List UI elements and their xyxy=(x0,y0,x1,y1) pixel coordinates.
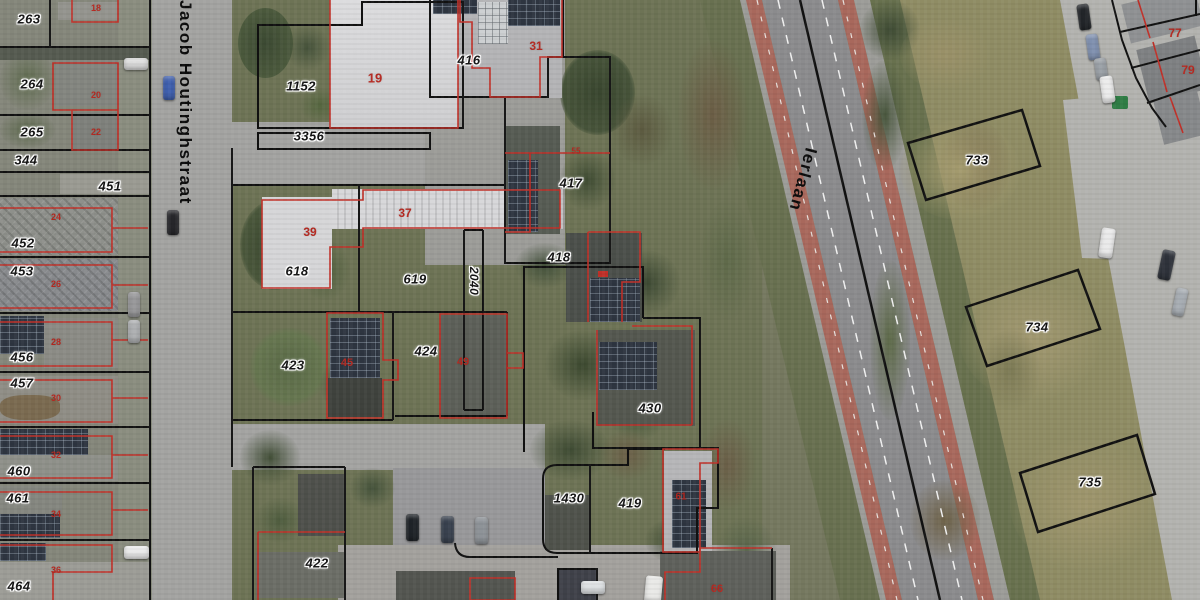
parcel-label-264: 264 xyxy=(21,77,44,92)
parcel-label-456: 456 xyxy=(11,350,34,365)
parcel-label-418: 418 xyxy=(548,250,571,265)
parcel-label-422: 422 xyxy=(306,556,329,571)
parcel-label-263: 263 xyxy=(18,12,41,27)
house-number-24: 24 xyxy=(51,212,61,222)
map-viewport[interactable]: 2632642653444514524534564574604614641152… xyxy=(0,0,1200,600)
parcel-label-618: 618 xyxy=(286,264,309,279)
street-label-jacob-houtinghstraat: Jacob Houtinghstraat xyxy=(175,0,195,205)
parcel-label-733: 733 xyxy=(966,153,989,168)
house-number-39: 39 xyxy=(303,225,316,239)
house-number-45: 45 xyxy=(341,357,353,369)
parcel-label-464: 464 xyxy=(8,579,31,594)
parcel-label-424: 424 xyxy=(415,344,438,359)
parcel-label-344: 344 xyxy=(15,153,38,168)
parcel-label-416: 416 xyxy=(458,53,481,68)
parcel-label-453: 453 xyxy=(11,264,34,279)
parcel-label-423: 423 xyxy=(282,358,305,373)
house-number-32: 32 xyxy=(51,450,61,460)
house-number-31: 31 xyxy=(529,39,542,53)
house-number-49: 49 xyxy=(457,356,469,368)
house-number-30: 30 xyxy=(51,393,61,403)
parcel-label-735: 735 xyxy=(1079,475,1102,490)
house-number-28: 28 xyxy=(51,337,61,347)
parcel-label-417: 417 xyxy=(560,176,583,191)
parcel-label-460: 460 xyxy=(8,464,31,479)
house-number-34: 34 xyxy=(51,509,61,519)
house-number-79: 79 xyxy=(1181,63,1194,77)
house-number-26: 26 xyxy=(51,279,61,289)
parcel-label-1152: 1152 xyxy=(286,79,316,94)
house-number-77: 77 xyxy=(1168,26,1181,40)
parcel-label-734: 734 xyxy=(1026,320,1049,335)
house-number-20: 20 xyxy=(91,90,101,100)
house-number-66: 66 xyxy=(711,583,723,595)
parcel-label-461: 461 xyxy=(7,491,30,506)
parcel-label-457: 457 xyxy=(11,376,34,391)
house-number-37: 37 xyxy=(398,206,411,220)
parcel-label-419: 419 xyxy=(619,496,642,511)
parcel-label-1430: 1430 xyxy=(554,491,585,506)
house-number-36: 36 xyxy=(51,565,61,575)
parcel-label-2040: 2040 xyxy=(467,267,481,295)
parcel-label-619: 619 xyxy=(404,272,427,287)
house-number-55: 55 xyxy=(572,147,581,156)
house-number-61: 61 xyxy=(675,492,686,503)
house-number-19: 19 xyxy=(368,71,382,86)
parcel-label-430: 430 xyxy=(639,401,662,416)
parcel-label-265: 265 xyxy=(21,125,44,140)
house-number-22: 22 xyxy=(91,127,101,137)
parcel-label-3356: 3356 xyxy=(294,129,325,144)
house-number-18: 18 xyxy=(91,3,101,13)
parcel-label-452: 452 xyxy=(12,236,35,251)
parcel-label-451: 451 xyxy=(99,179,122,194)
